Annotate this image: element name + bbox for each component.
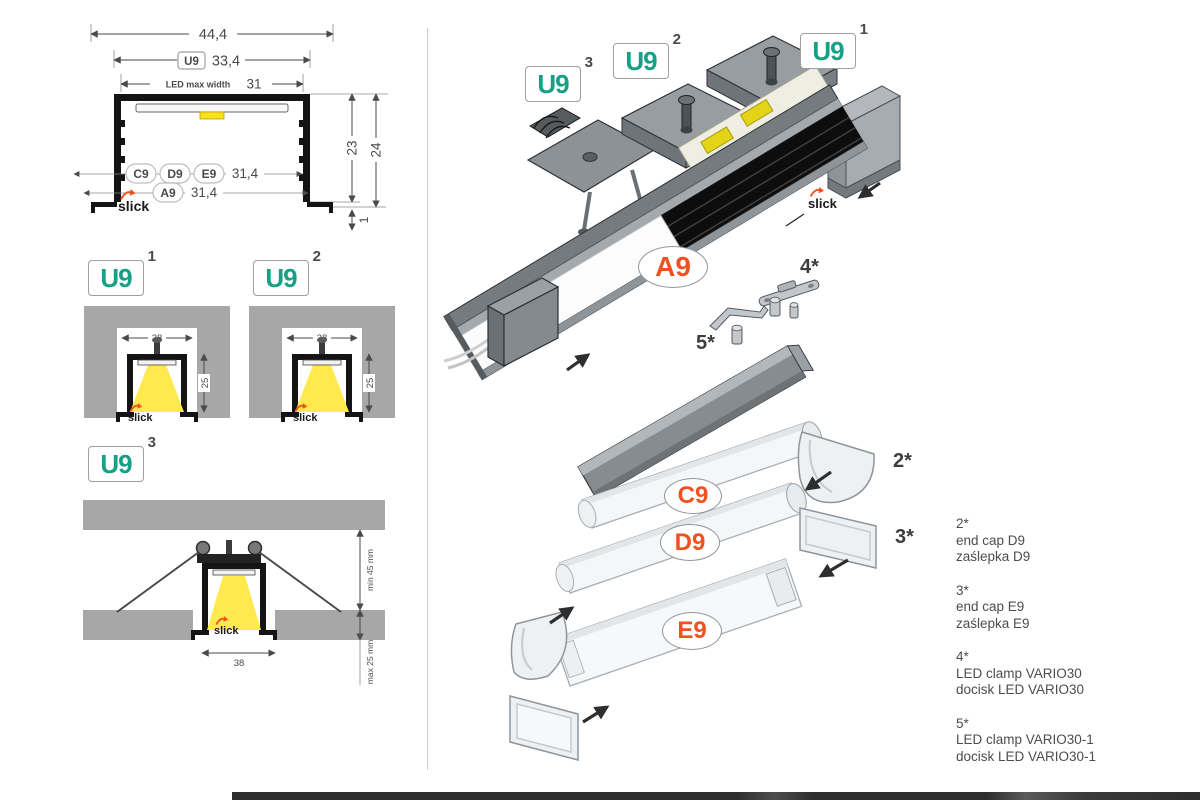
dim-total-width: 44,4: [91, 26, 333, 43]
cross-section-drawing: 44,4 U9 33,4 LED max width 31 23: [58, 14, 408, 242]
u9-sup: 2: [313, 248, 321, 265]
ref-2: 2*: [893, 450, 912, 473]
a9-oval-label: A9: [638, 246, 708, 288]
slick-logo: slick: [118, 198, 149, 214]
d9-oval-label: D9: [660, 524, 720, 561]
legend-item: 5* LED clamp VARIO30-1 docisk LED VARIO3…: [956, 716, 1200, 766]
slick-logo: slick: [808, 196, 837, 211]
u9-label: U9: [100, 263, 131, 294]
exploded-u9-3-tagbox: U9 3: [525, 66, 581, 102]
u9-sup: 1: [860, 21, 868, 38]
covers-width-row: C9 D9 E9 31,4: [74, 164, 302, 183]
end-cap-round-left: [511, 608, 572, 679]
e9-oval-label: E9: [662, 612, 722, 650]
c9-oval-label: C9: [664, 478, 722, 514]
legend: 2* end cap D9 zaślepka D9 3* end cap E9 …: [956, 516, 1200, 782]
led-bar: [213, 570, 255, 575]
svg-text:31,4: 31,4: [232, 166, 259, 181]
svg-text:31: 31: [246, 77, 261, 92]
dim-u9-width: U9 33,4: [114, 51, 310, 70]
legend-line-pl: zaślepka D9: [956, 549, 1200, 566]
slick-pointer-line: [786, 214, 804, 226]
legend-item: 4* LED clamp VARIO30 docisk LED VARIO30: [956, 649, 1200, 699]
mount-diagram-3: min 45 mm max 25 mm 38: [55, 490, 400, 705]
u9-label: U9: [265, 263, 296, 294]
legend-ref: 5*: [956, 716, 1200, 733]
led-bar: [303, 360, 341, 365]
svg-text:25: 25: [200, 378, 211, 389]
svg-text:1: 1: [357, 216, 371, 223]
panel-left: [83, 610, 193, 640]
end-cap-flat-left: [510, 696, 607, 760]
dim-outer-height: 24: [368, 94, 384, 207]
u9-2-tagbox: U9 2: [253, 260, 309, 296]
u9-sup: 2: [673, 31, 681, 48]
u9-label: U9: [537, 69, 568, 100]
svg-text:LED max width: LED max width: [166, 80, 231, 90]
end-cap-d9-part: [798, 432, 874, 503]
svg-text:44,4: 44,4: [199, 27, 227, 43]
svg-text:min 45 mm: min 45 mm: [365, 549, 375, 591]
exploded-u9-1-tagbox: U9 1: [800, 33, 856, 69]
u9-sup: 3: [585, 54, 593, 71]
u9-1-tagbox: U9 1: [88, 260, 144, 296]
slick-swoosh-icon: [119, 189, 137, 201]
svg-text:E9: E9: [202, 167, 217, 181]
exploded-view: [430, 8, 955, 793]
dim-width: 38: [202, 653, 275, 669]
dim-flange-height: 1: [352, 210, 371, 230]
u9-sup: 1: [148, 248, 156, 265]
exploded-u9-2-tagbox: U9 2: [613, 43, 669, 79]
svg-text:D9: D9: [167, 167, 183, 181]
ref-4: 4*: [800, 256, 819, 279]
u9-sup: 3: [148, 434, 156, 451]
u9-label: U9: [812, 36, 843, 67]
ref-5: 5*: [696, 332, 715, 355]
led-strip: [136, 104, 288, 119]
legend-line-en: end cap E9: [956, 599, 1200, 616]
dim-inner-height: 23: [344, 94, 360, 202]
u9-label: U9: [625, 46, 656, 77]
svg-text:24: 24: [369, 142, 384, 158]
legend-item: 3* end cap E9 zaślepka E9: [956, 583, 1200, 633]
svg-text:max 25 mm: max 25 mm: [365, 640, 375, 684]
u9-3-tagbox: U9 3: [88, 446, 144, 482]
svg-text:31,4: 31,4: [191, 185, 218, 200]
svg-text:U9: U9: [184, 56, 199, 68]
svg-text:25: 25: [365, 378, 376, 389]
legend-line-en: LED clamp VARIO30-1: [956, 732, 1200, 749]
legend-line-pl: docisk LED VARIO30: [956, 682, 1200, 699]
vertical-divider: [427, 28, 428, 770]
dim-led-max-width: LED max width 31: [121, 76, 303, 92]
mount-diagram-2: 38 25: [247, 306, 407, 456]
slick-logo: slick: [214, 625, 238, 637]
led-clamp-vario30-1: [710, 306, 768, 344]
svg-text:A9: A9: [160, 186, 176, 200]
legend-line-pl: docisk LED VARIO30-1: [956, 749, 1200, 766]
legend-line-en: LED clamp VARIO30: [956, 666, 1200, 683]
svg-text:33,4: 33,4: [212, 54, 240, 70]
legend-ref: 3*: [956, 583, 1200, 600]
legend-item: 2* end cap D9 zaślepka D9: [956, 516, 1200, 566]
u9-label: U9: [100, 449, 131, 480]
bottom-cropped-strip: [232, 792, 1200, 800]
svg-text:38: 38: [234, 658, 245, 669]
legend-ref: 2*: [956, 516, 1200, 533]
led-bar: [138, 360, 176, 365]
slick-logo: slick: [293, 412, 317, 424]
legend-line-pl: zaślepka E9: [956, 616, 1200, 633]
ref-3: 3*: [895, 526, 914, 549]
dim-min-distance: min 45 mm: [360, 530, 375, 610]
svg-text:C9: C9: [133, 167, 149, 181]
slick-logo: slick: [128, 412, 152, 424]
end-cap-e9-part: [800, 508, 876, 576]
svg-text:23: 23: [345, 140, 360, 155]
mount-diagram-1: 38 25: [82, 306, 242, 456]
panel-right: [275, 610, 385, 640]
ceiling: [83, 500, 385, 530]
legend-ref: 4*: [956, 649, 1200, 666]
legend-line-en: end cap D9: [956, 533, 1200, 550]
